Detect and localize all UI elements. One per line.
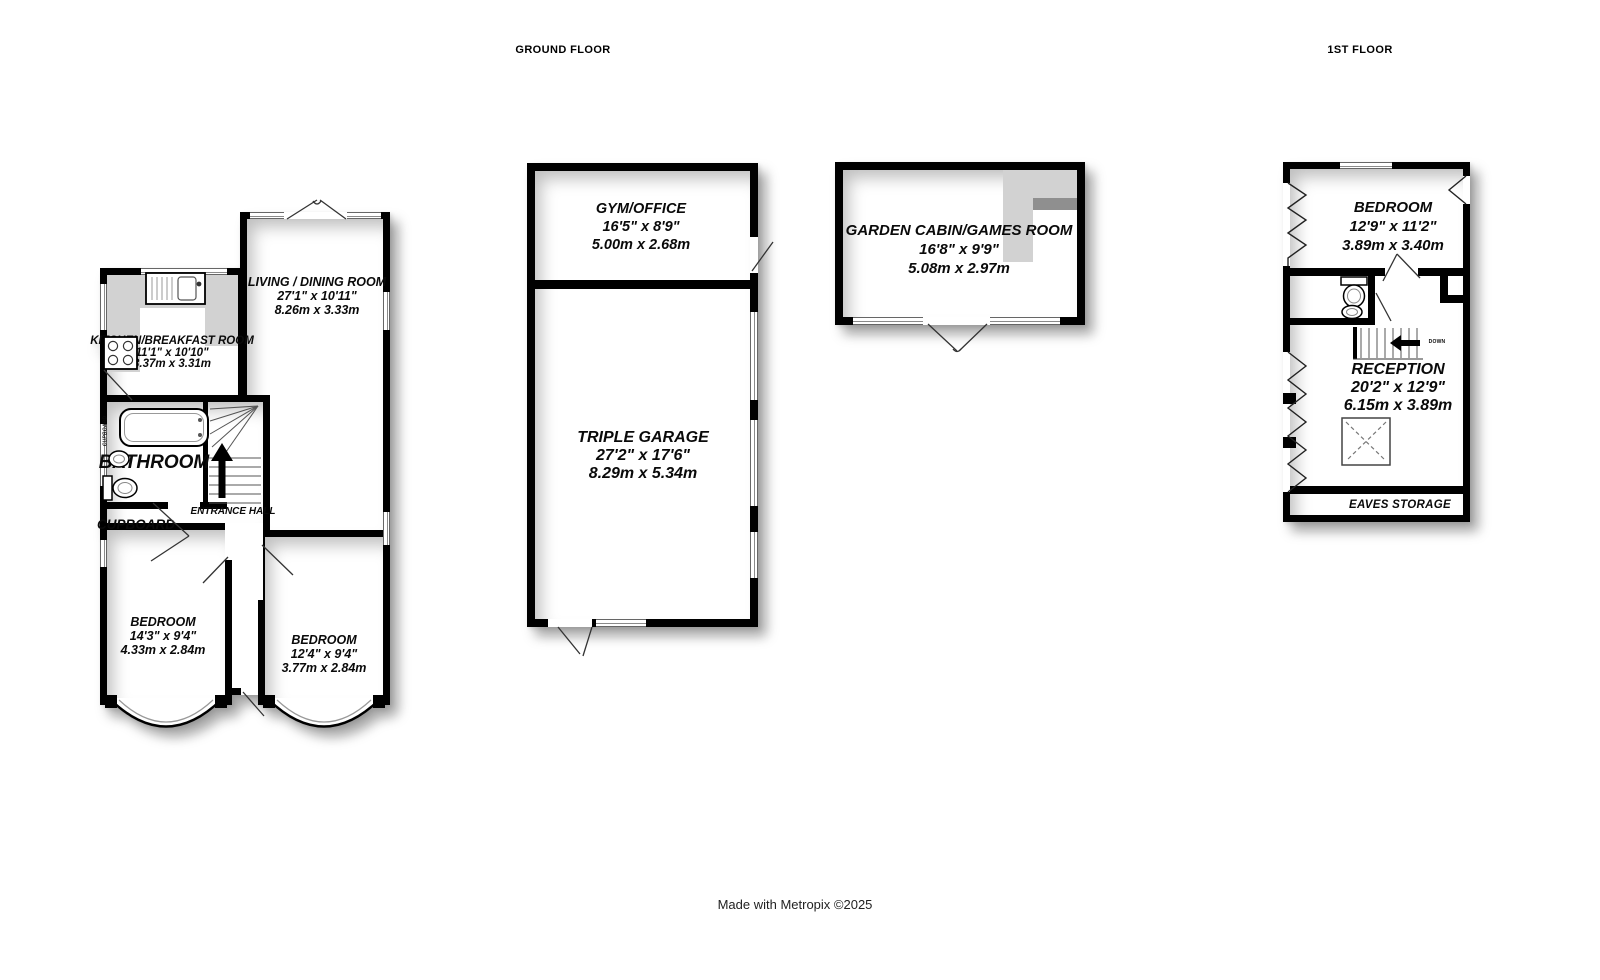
window <box>1340 162 1392 169</box>
floorplan-page: LIVING / DINING ROOM 27'1" x 10'11" 8.26… <box>0 0 1600 980</box>
wall-stub <box>1283 393 1296 404</box>
first-floor-building: BEDROOM 12'9" x 11'2" 3.89m x 3.40m RECE… <box>0 0 1600 980</box>
wall <box>1353 327 1357 359</box>
eaves-wall-gap <box>1463 176 1470 204</box>
credit-text: Made with Metropix ©2025 <box>718 897 873 912</box>
room-size-metric: 6.15m x 3.89m <box>1344 397 1453 415</box>
stairs-down-label: DOWN <box>1429 340 1446 345</box>
wall <box>1368 268 1375 325</box>
eaves-wall-gap <box>1283 183 1290 266</box>
wall <box>1290 318 1375 325</box>
title-text: GROUND FLOOR <box>515 44 610 56</box>
wall <box>1290 486 1463 494</box>
room-size-metric: 3.89m x 3.40m <box>1342 236 1444 255</box>
wall <box>1448 295 1463 303</box>
wall <box>1440 268 1448 303</box>
room-size-imperial: 20'2" x 12'9" <box>1344 379 1453 397</box>
room-size-imperial: 12'9" x 11'2" <box>1342 217 1444 236</box>
title-text: 1ST FLOOR <box>1327 44 1392 56</box>
room-label-eaves-storage: EAVES STORAGE <box>1349 499 1451 511</box>
staircase-down <box>1353 327 1423 359</box>
room-label-first-bedroom: BEDROOM 12'9" x 11'2" 3.89m x 3.40m <box>1342 198 1444 255</box>
room-name: BEDROOM <box>1342 198 1444 217</box>
wall-stub <box>1283 437 1296 448</box>
metropix-credit: Made with Metropix ©2025 <box>718 897 873 912</box>
eaves-wall-gap <box>1283 352 1290 492</box>
room-name: RECEPTION <box>1344 361 1453 379</box>
first-floor-title: 1ST FLOOR <box>1327 44 1392 56</box>
ground-floor-title: GROUND FLOOR <box>515 44 610 56</box>
room-label-reception: RECEPTION 20'2" x 12'9" 6.15m x 3.89m <box>1344 361 1453 415</box>
room-name: EAVES STORAGE <box>1349 499 1451 511</box>
stairs-direction: DOWN <box>1429 340 1446 345</box>
